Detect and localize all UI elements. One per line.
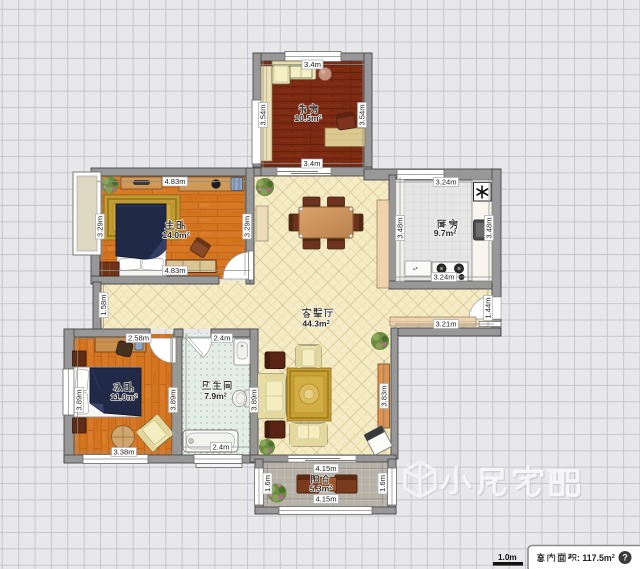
svg-text:11.0m2: 11.0m2 [111,392,138,402]
svg-text:3.38m: 3.38m [113,448,134,457]
svg-text:4.83m: 4.83m [164,266,185,275]
svg-text:1.44m: 1.44m [483,297,492,318]
svg-text:1.6m: 1.6m [378,475,387,492]
svg-text:3.89m: 3.89m [168,389,177,410]
svg-text:3.89m: 3.89m [74,389,83,410]
svg-text:1.58m: 1.58m [99,294,108,315]
svg-text:3.29m: 3.29m [242,216,251,237]
svg-text:7.9m2: 7.9m2 [204,391,227,401]
svg-text:3.54m: 3.54m [258,104,267,125]
svg-text:3.4m: 3.4m [304,60,321,69]
svg-text:9.7m2: 9.7m2 [434,228,457,238]
svg-text:4.15m: 4.15m [315,464,336,473]
svg-text:2.4m: 2.4m [213,443,230,452]
svg-text:5.3m2: 5.3m2 [310,484,333,494]
svg-text:3.54m: 3.54m [357,104,366,125]
svg-text:1.6m: 1.6m [263,475,272,492]
svg-text:3.24m: 3.24m [433,273,454,282]
svg-text:: 117.5m2: : 117.5m2 [577,553,615,563]
svg-text:3.4m: 3.4m [304,159,321,168]
svg-text:3.83m: 3.83m [379,385,388,406]
svg-text:3.48m: 3.48m [395,217,404,238]
svg-text:3.21m: 3.21m [435,320,456,329]
svg-text:?: ? [622,553,627,563]
svg-text:44.3m2: 44.3m2 [302,319,329,329]
svg-text:10.5m2: 10.5m2 [294,113,321,123]
svg-text:3.24m: 3.24m [435,178,456,187]
svg-text:3.29m: 3.29m [95,216,104,237]
svg-text:4.83m: 4.83m [164,177,185,186]
svg-text:3.48m: 3.48m [484,217,493,238]
svg-text:14.0m2: 14.0m2 [162,230,189,240]
svg-text:1.0m: 1.0m [498,553,517,562]
svg-text:2.58m: 2.58m [128,334,149,343]
svg-text:3.89m: 3.89m [249,389,258,410]
svg-text:2.4m: 2.4m [214,334,231,343]
svg-text:4.15m: 4.15m [315,495,336,504]
